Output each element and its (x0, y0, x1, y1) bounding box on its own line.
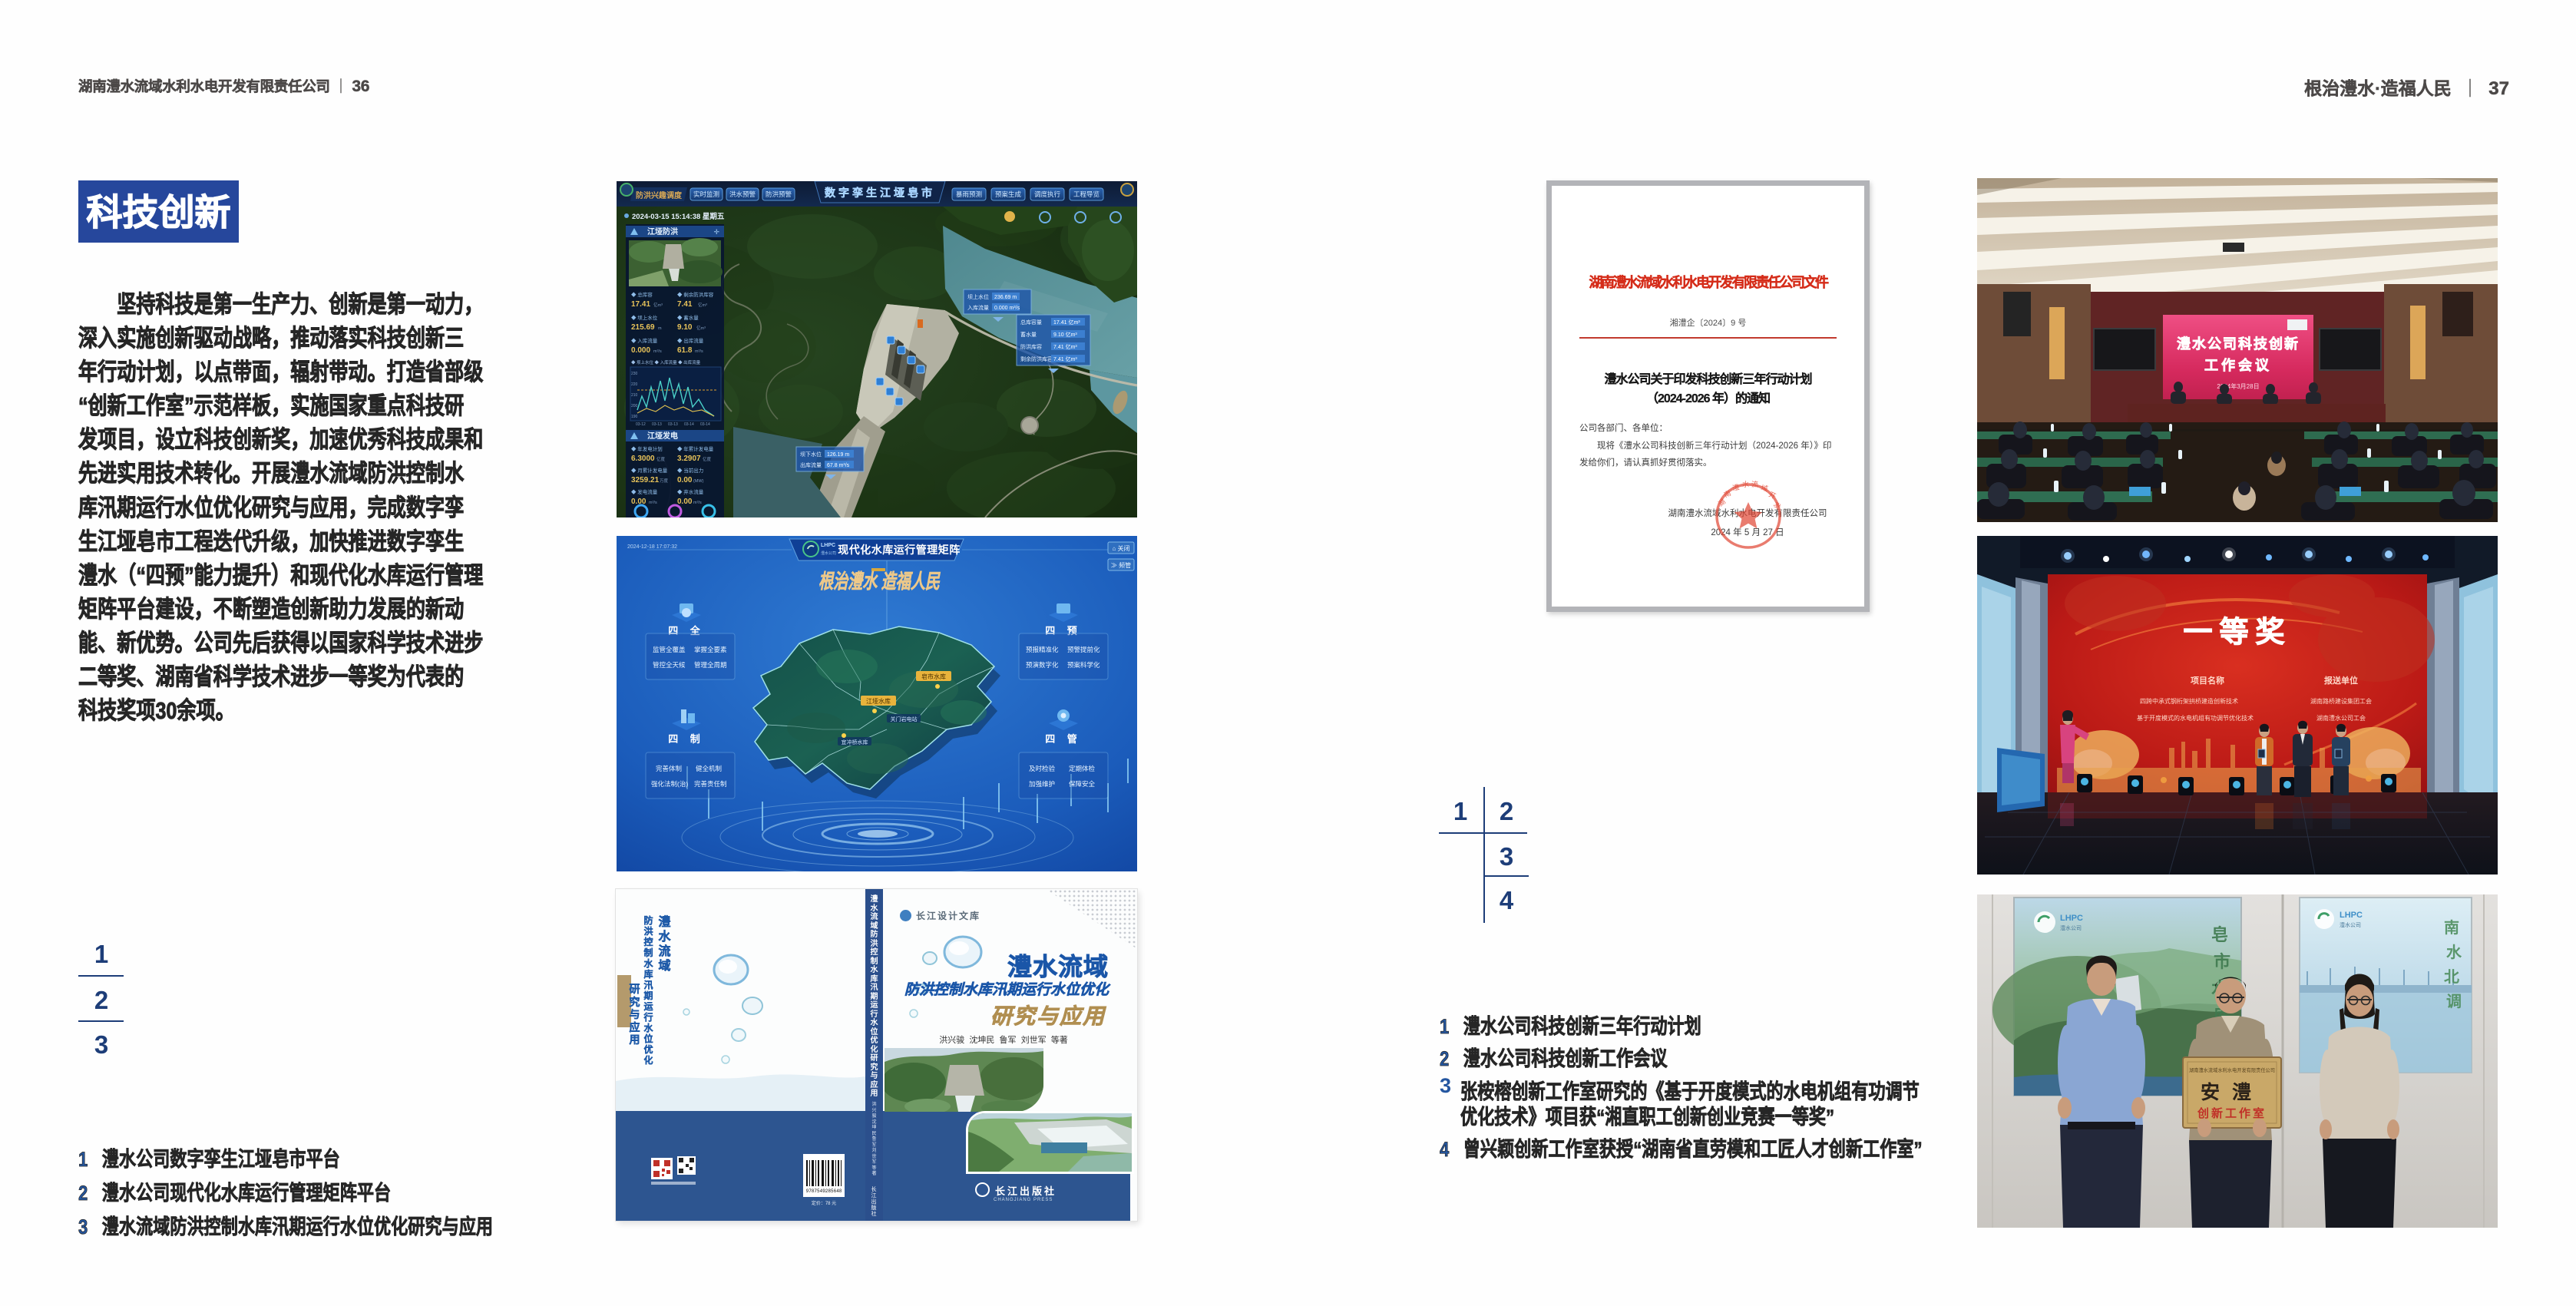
svg-text:管控全天候: 管控全天候 (653, 661, 686, 669)
svg-text:保障安全: 保障安全 (1069, 780, 1096, 788)
svg-text:完善体制: 完善体制 (656, 765, 682, 772)
svg-text:210: 210 (631, 393, 638, 398)
svg-text:强化法制(治): 强化法制(治) (651, 780, 688, 788)
svg-text:澧水公司: 澧水公司 (821, 551, 836, 556)
svg-text:坝上水位: 坝上水位 (967, 293, 989, 300)
svg-text:调度执行: 调度执行 (1034, 190, 1061, 198)
svg-text:m³/s: m³/s (695, 349, 703, 354)
svg-text:预案科学化: 预案科学化 (1067, 661, 1100, 669)
svg-text:亿m³: 亿m³ (698, 302, 707, 308)
svg-text:◆ 出库流量: ◆ 出库流量 (677, 337, 704, 344)
svg-text:江垭水库: 江垭水库 (866, 697, 891, 705)
svg-text:m³/s: m³/s (653, 349, 662, 354)
svg-text:m³/s: m³/s (649, 501, 657, 505)
svg-text:洪水预警: 洪水预警 (729, 190, 756, 198)
svg-text:四 制: 四 制 (668, 733, 705, 745)
svg-text:总库容量: 总库容量 (1020, 319, 1042, 326)
svg-text:一等奖: 一等奖 (2183, 617, 2291, 649)
svg-text:61.8: 61.8 (677, 346, 693, 355)
svg-text:健全机制: 健全机制 (696, 765, 722, 772)
svg-text:四跨中承式钢桁架拱桥建造创新技术: 四跨中承式钢桁架拱桥建造创新技术 (2140, 697, 2238, 705)
svg-text:0.000: 0.000 (631, 346, 650, 355)
svg-text:7.41 亿m³: 7.41 亿m³ (1053, 343, 1077, 350)
svg-text:m³/s: m³/s (693, 501, 702, 505)
svg-text:亿度: 亿度 (703, 456, 712, 462)
svg-text:◆ 入库流量: ◆ 入库流量 (631, 337, 658, 344)
svg-text:项目名称: 项目名称 (2191, 675, 2224, 686)
svg-text:0.00: 0.00 (677, 498, 693, 506)
svg-text:湖南路桥建设集团工会: 湖南路桥建设集团工会 (2310, 697, 2372, 705)
svg-text:230: 230 (631, 372, 638, 376)
svg-text:调: 调 (2446, 993, 2462, 1010)
svg-text:工作会议: 工作会议 (2204, 357, 2272, 373)
svg-text:9.10 亿m³: 9.10 亿m³ (1053, 331, 1077, 338)
svg-text:◆ 蓄水量: ◆ 蓄水量 (677, 314, 699, 321)
svg-text:宜冲桥水库: 宜冲桥水库 (842, 739, 868, 746)
svg-text:◆ 发电流量: ◆ 发电流量 (631, 488, 658, 495)
svg-text:✛: ✛ (713, 228, 719, 236)
svg-text:江垭发电: 江垭发电 (647, 431, 678, 441)
svg-text:四 管: 四 管 (1045, 733, 1082, 745)
svg-text:剩余防洪库容: 剩余防洪库容 (1020, 355, 1053, 362)
svg-text:基于开度模式的水电机组有功调节优化技术: 基于开度模式的水电机组有功调节优化技术 (2137, 714, 2254, 722)
svg-text:LHPC: LHPC (2060, 914, 2083, 923)
svg-text:工程导览: 工程导览 (1073, 190, 1100, 198)
svg-text:预报精准化: 预报精准化 (1026, 646, 1059, 653)
svg-text:发: 发 (1772, 500, 1783, 511)
svg-text:9787549285648: 9787549285648 (806, 1189, 842, 1194)
svg-text:澧水公司: 澧水公司 (2340, 921, 2361, 928)
svg-text:⌂ 关闭: ⌂ 关闭 (1112, 544, 1129, 552)
svg-text:完善责任制: 完善责任制 (694, 780, 727, 788)
svg-text:皂市水库: 皂市水库 (921, 673, 946, 680)
svg-text:管理全周期: 管理全周期 (694, 661, 727, 669)
svg-text:入库流量: 入库流量 (967, 304, 989, 311)
svg-text:LHPC: LHPC (2340, 911, 2363, 920)
svg-text:皂: 皂 (2211, 925, 2228, 944)
svg-text:67.8 m³/s: 67.8 m³/s (827, 463, 850, 468)
svg-text:定期体检: 定期体检 (1069, 765, 1096, 772)
svg-text:定价：78 元: 定价：78 元 (812, 1200, 836, 1206)
svg-text:03-13: 03-13 (668, 422, 678, 427)
svg-text:126.19 m: 126.19 m (827, 452, 849, 458)
svg-text:190: 190 (631, 415, 638, 419)
svg-text:◆ 坝上水位: ◆ 坝上水位 (631, 314, 658, 321)
svg-text:亿m³: 亿m³ (653, 302, 663, 308)
svg-text:关门岩电站: 关门岩电站 (891, 716, 918, 722)
svg-text:根治澧水 造福人民: 根治澧水 造福人民 (818, 570, 941, 593)
svg-text:水: 水 (2446, 944, 2462, 961)
svg-text:0.000 m³/s: 0.000 m³/s (994, 306, 1020, 311)
svg-text:南: 南 (2444, 919, 2459, 937)
svg-text:湖南澧水公司工会: 湖南澧水公司工会 (2316, 714, 2366, 722)
svg-text:17.41 亿m³: 17.41 亿m³ (1053, 319, 1080, 326)
svg-text:预警提前化: 预警提前化 (1067, 646, 1100, 653)
svg-text:加强维护: 加强维护 (1029, 780, 1055, 788)
svg-text:数字孪生江垭皂市: 数字孪生江垭皂市 (825, 187, 935, 199)
svg-text:(MW): (MW) (693, 479, 704, 484)
svg-text:出库流量: 出库流量 (800, 461, 822, 468)
svg-text:澧: 澧 (1731, 482, 1740, 492)
svg-text:◆ 月累计发电量: ◆ 月累计发电量 (631, 467, 668, 474)
svg-text:创新工作室: 创新工作室 (2197, 1106, 2267, 1120)
svg-text:北: 北 (2444, 968, 2459, 986)
svg-text:17.41: 17.41 (631, 300, 650, 309)
svg-text:安澧: 安澧 (2201, 1081, 2264, 1103)
svg-text:7.41 亿m³: 7.41 亿m³ (1053, 355, 1077, 362)
svg-text:江垭防洪: 江垭防洪 (647, 226, 678, 236)
svg-text:澧水公司科技创新: 澧水公司科技创新 (2177, 336, 2300, 352)
svg-text:9.10: 9.10 (677, 323, 693, 332)
svg-text:坝下水位: 坝下水位 (800, 451, 822, 458)
svg-text:监管全覆盖: 监管全覆盖 (653, 646, 686, 653)
svg-text:亿度: 亿度 (656, 456, 666, 462)
svg-text:236.69 m: 236.69 m (994, 295, 1017, 300)
svg-text:≫ 频管: ≫ 频管 (1111, 561, 1131, 569)
svg-text:◆ 总库容: ◆ 总库容 (631, 291, 653, 298)
svg-text:03-14: 03-14 (684, 422, 694, 427)
svg-text:3259.21: 3259.21 (631, 476, 660, 484)
svg-text:6.3000: 6.3000 (631, 455, 655, 463)
svg-text:澧水公司: 澧水公司 (2060, 924, 2082, 931)
svg-text:0.00: 0.00 (677, 476, 693, 484)
svg-text:200: 200 (631, 404, 638, 408)
svg-text:03-14: 03-14 (700, 422, 710, 427)
svg-text:03-13: 03-13 (652, 422, 662, 427)
svg-text:流: 流 (1751, 480, 1758, 488)
svg-text:2024-03-15 15:14:38 星期五: 2024-03-15 15:14:38 星期五 (632, 212, 725, 221)
svg-text:◆ 坝上水位 ◆ 入库流量 ◆ 出库流量: ◆ 坝上水位 ◆ 入库流量 ◆ 出库流量 (631, 359, 701, 365)
svg-text:◆ 年累计发电量: ◆ 年累计发电量 (677, 445, 714, 452)
svg-text:水: 水 (1742, 480, 1749, 488)
svg-text:m: m (658, 326, 662, 331)
svg-text:LHPC: LHPC (821, 543, 835, 548)
svg-text:◆ 年发电计划: ◆ 年发电计划 (631, 445, 663, 452)
svg-text:2024-12-18 17:07:32: 2024-12-18 17:07:32 (627, 544, 677, 550)
svg-text:及时检验: 及时检验 (1029, 765, 1056, 772)
svg-text:实时监测: 实时监测 (693, 190, 719, 198)
svg-text:掌握全要素: 掌握全要素 (694, 646, 727, 653)
svg-text:3.2907: 3.2907 (677, 455, 701, 463)
svg-text:湖南澧水流域水利水电开发有限责任公司: 湖南澧水流域水利水电开发有限责任公司 (2189, 1066, 2275, 1073)
svg-text:预案生成: 预案生成 (995, 190, 1022, 198)
svg-text:万度: 万度 (660, 478, 669, 484)
svg-text:预演数字化: 预演数字化 (1026, 661, 1059, 669)
svg-text:亿m³: 亿m³ (696, 325, 706, 331)
svg-text:暴雨预测: 暴雨预测 (956, 190, 982, 198)
svg-text:◆ 弃水流量: ◆ 弃水流量 (677, 488, 704, 495)
svg-text:220: 220 (631, 382, 638, 387)
svg-text:03-12: 03-12 (636, 422, 646, 427)
svg-text:防洪预警: 防洪预警 (766, 190, 792, 198)
svg-text:市: 市 (2214, 952, 2230, 971)
svg-text:◆ 剩余防洪库容: ◆ 剩余防洪库容 (677, 291, 714, 298)
svg-text:报送单位: 报送单位 (2324, 675, 2358, 686)
svg-text:防洪兴趣调度: 防洪兴趣调度 (636, 190, 683, 200)
svg-text:215.69: 215.69 (631, 323, 655, 332)
svg-text:◆ 当前出力: ◆ 当前出力 (677, 467, 703, 474)
svg-text:防洪库容: 防洪库容 (1020, 343, 1042, 350)
svg-text:现代化水库运行管理矩阵: 现代化水库运行管理矩阵 (838, 544, 961, 556)
svg-text:7.41: 7.41 (677, 300, 693, 309)
svg-text:蓄水量: 蓄水量 (1020, 331, 1037, 338)
